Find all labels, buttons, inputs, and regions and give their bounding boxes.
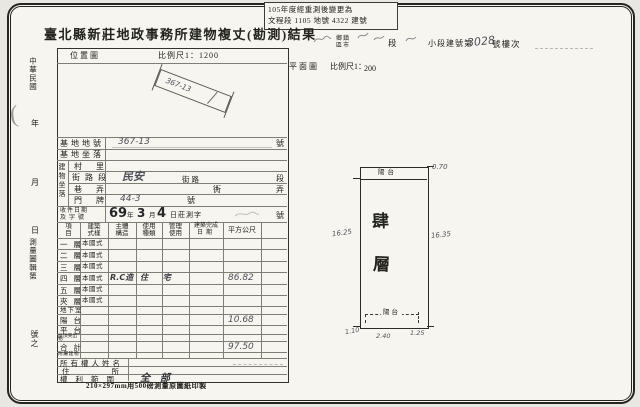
handwriting-squiggle-icon (356, 30, 372, 41)
grid-line (68, 160, 69, 206)
remeasure-stamp: 105年度經重測後變更為 文程段 1105 地號 4322 建號 (264, 2, 398, 30)
plan-floor-char-2: 層 (373, 256, 391, 274)
base-parcel-unit: 號 (276, 140, 284, 148)
floor-row-style: 本國式 (82, 253, 103, 260)
grid-line (57, 137, 287, 138)
number-suffix-label: 號之 (30, 330, 38, 348)
grid-line (136, 222, 137, 358)
grid-line (57, 238, 287, 239)
handwriting-squiggle-icon (372, 32, 386, 43)
receipt-label-line1: 收件日期 (60, 208, 88, 215)
col-header-use-type: 使用 種類 (136, 222, 162, 238)
base-parcel-label: 基地地號 (60, 140, 104, 148)
paper-spec-note: 210×297mm用500磅測量原圖紙印製 (86, 383, 207, 390)
plan-dim-bottom-mid: 2.40 (376, 333, 390, 340)
era-label: 中華民國 (29, 57, 37, 91)
grid-line (57, 284, 287, 285)
plan-dim-bottom-right: 1.25 (410, 330, 424, 337)
grid-line (57, 325, 287, 326)
plan-label: 平面圖 (289, 63, 319, 71)
street-name-handwritten: 民安 (122, 171, 144, 182)
location-map-scale: 比例尺1：1200 (158, 52, 219, 60)
receipt-month-unit: 月 (149, 213, 156, 220)
grid-line (57, 306, 287, 307)
grid-line (57, 261, 287, 262)
col-header-style: 建築 式樣 (80, 222, 108, 238)
col-header-management: 管理 使用 (162, 222, 189, 238)
month-label: 月 (31, 179, 39, 187)
grid-line (57, 334, 287, 335)
col-header-structure: 主體 構造 (108, 222, 136, 238)
receipt-number-unit: 號 (276, 212, 284, 220)
document-title: 臺北縣新莊地政事務所建物複丈(勘測)結果 (44, 28, 317, 41)
grid-line (57, 206, 287, 207)
location-map-label: 位置圖 (70, 52, 100, 60)
floor-row-style: 本國式 (82, 287, 103, 294)
basement-row-label: 地下室 (60, 308, 83, 315)
plan-floor-char-1: 肆 (372, 213, 390, 231)
door-plate-label: 門牌 (74, 197, 118, 205)
receipt-year-stamped: 69 (109, 206, 127, 221)
col-header-item: 項 目 (57, 222, 80, 238)
grid-line (261, 222, 262, 358)
survey-map-ref-label: 測量圖輯第 (29, 238, 37, 281)
plan-corner-tick (427, 326, 434, 327)
grid-line (108, 222, 109, 358)
grid-line (162, 222, 163, 358)
grid-line (57, 63, 287, 64)
floor-plan-outline (360, 167, 429, 329)
annex-row-label: 附屬建物 (58, 353, 79, 358)
receipt-office-text: 日莊測字 (170, 212, 202, 219)
plan-bottom-balcony-label: 陽台 (381, 310, 402, 317)
year-label: 年 (31, 120, 39, 128)
plan-corner-tick (353, 178, 360, 179)
balcony-row-label: 陽台 (60, 317, 87, 325)
stamp-line1: 105年度經重測後變更為 (268, 4, 394, 15)
handwriting-squiggle-icon (404, 33, 418, 44)
lane-unit2: 弄 (276, 186, 284, 194)
grid-line (223, 222, 224, 358)
sketch-divider-line (207, 92, 218, 104)
floor-row-style: 本國式 (82, 241, 103, 248)
section-label: 段 (388, 39, 397, 48)
balcony-area-handwritten: 10.68 (228, 316, 254, 325)
lane-unit1: 衖 (213, 186, 221, 194)
lane-label: 巷弄 (74, 186, 118, 194)
plan-bottom-balcony-corner (418, 312, 420, 323)
grid-line (68, 171, 287, 172)
scanned-survey-document: 105年度經重測後變更為 文程段 1105 地號 4322 建號 臺北縣新莊地政… (0, 0, 640, 407)
floor4-use-handwritten: 住 宅 (140, 274, 177, 282)
sketch-parcel-number: 367-13 (165, 77, 193, 94)
plan-scale-label: 比例尺1： (330, 63, 366, 71)
grid-line (68, 194, 287, 195)
street-unit1: 街路 (182, 176, 201, 184)
grid-line (57, 352, 287, 353)
receipt-label: 收件日期 及字號 (60, 208, 88, 222)
receipt-label-line2: 及字號 (60, 215, 88, 222)
township-top: 鄉鎮 (336, 36, 350, 43)
plan-bottom-balcony-corner (365, 314, 367, 323)
street-label: 街路段 (72, 174, 111, 182)
grid-line (57, 160, 287, 161)
township-label: 鄉鎮 區市 (336, 36, 350, 49)
floor4-structure-handwritten: R.C造 (110, 274, 133, 282)
plan-scale-value: 200 (364, 65, 376, 73)
receipt-year-unit: 年 (127, 213, 134, 220)
building-number-suffix: 號樓次 (492, 40, 521, 49)
door-number-handwritten: 44-3 (120, 195, 140, 204)
street-unit2: 段 (276, 175, 284, 183)
plan-top-balcony-label: 陽台 (378, 170, 397, 177)
grid-line (57, 295, 287, 296)
base-location-label: 基地坐落 (60, 151, 104, 159)
receipt-day-stamped: 4 (157, 206, 166, 221)
door-unit: 號 (187, 197, 195, 205)
roof-protrusion-row-label: 屋頂突出物 (58, 335, 80, 342)
stamp-line2: 文程段 1105 地號 4322 建號 (268, 15, 394, 26)
base-parcel-value: 367-13 (118, 138, 150, 147)
col-header-completion-date: 建築完成 日期 (189, 222, 223, 238)
day-label: 日 (31, 227, 39, 235)
grid-line (57, 249, 287, 250)
township-bot: 區市 (336, 43, 350, 50)
total-area-handwritten: 97.50 (228, 343, 254, 352)
handwriting-squiggle-icon (312, 33, 332, 45)
building-location-group-label: 建物坐落 (58, 163, 65, 199)
owner-blank-line (233, 364, 283, 365)
grid-line (68, 183, 287, 184)
village-label: 村里 (74, 163, 118, 171)
handwriting-squiggle-icon (233, 209, 261, 219)
platform-row-label: 平台 (60, 327, 87, 335)
receipt-month-stamped: 3 (137, 206, 145, 220)
cell-underline (112, 147, 272, 148)
floor-row-style: 本國式 (82, 298, 103, 305)
grid-line (189, 222, 190, 358)
floor-row-style: 本國式 (82, 276, 103, 283)
total-row-label: 合計 (60, 344, 87, 352)
floor-row-style: 本國式 (82, 264, 103, 271)
col-header-area-sqm: 平方公尺 (223, 222, 261, 238)
faint-pencil-line (535, 48, 593, 49)
plan-dim-top: 0.70 (432, 164, 448, 171)
floor4-area-handwritten: 86.82 (228, 274, 254, 283)
